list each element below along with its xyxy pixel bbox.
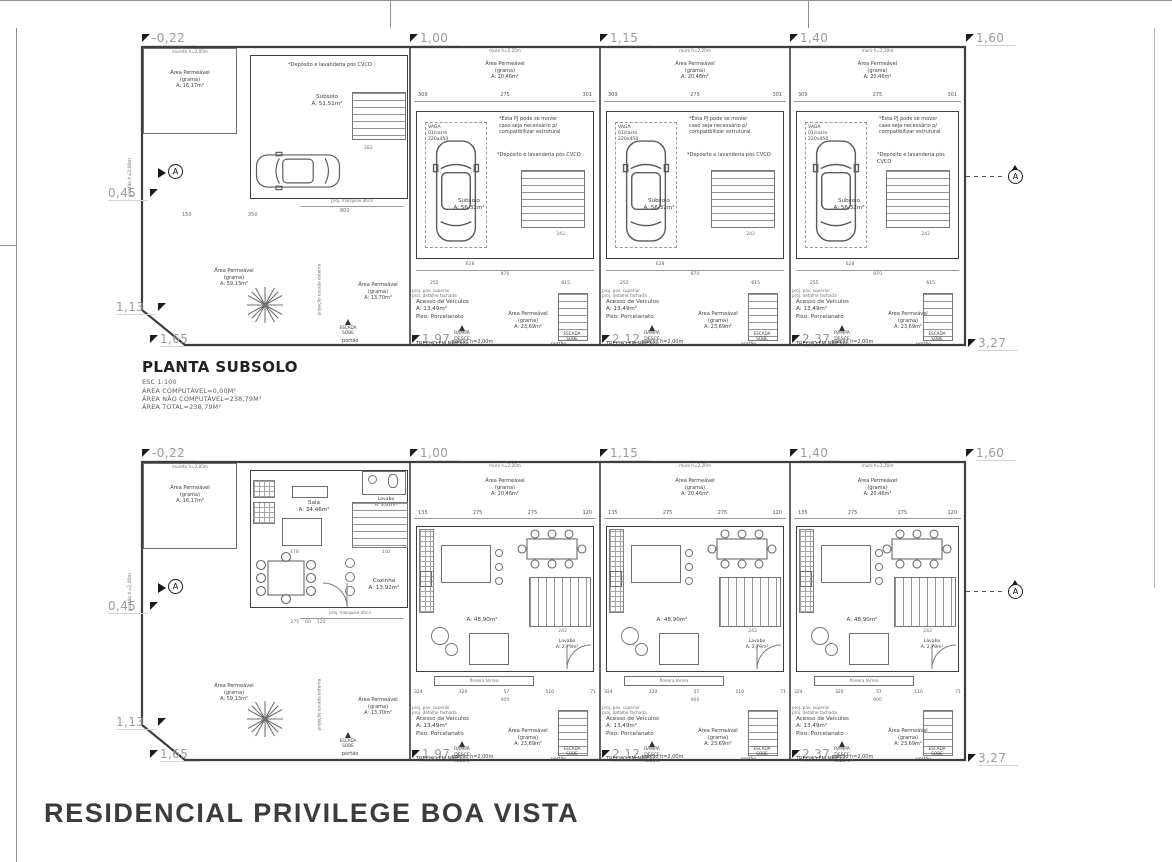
gate-label: portão [551, 342, 566, 348]
dim-label: 110 [735, 690, 744, 695]
unit-plan-subsolo: muro h=2,20m Área Permeável(grama)A: 20,… [600, 47, 790, 345]
stairs [352, 502, 408, 548]
wall-height-label: muro h=2,20m [600, 463, 790, 468]
dim-row: 255 615 [620, 281, 760, 286]
sofa [282, 518, 322, 546]
dim-line [606, 270, 784, 271]
cvco-note: *Depósito e lavanderia pós CVCO [877, 152, 956, 165]
dim-row: 135 275 275 120 [418, 510, 592, 516]
structure-note: *Esta PJ pode se movercaso seja necessár… [499, 116, 591, 136]
plan-title: PLANTA SUBSOLO [142, 358, 298, 376]
structure-note: *Esta PJ pode se movercaso seja necessár… [689, 116, 781, 136]
stool [685, 577, 693, 585]
dim-label: 320 [835, 690, 844, 695]
level-marker: 1,00 [410, 31, 460, 46]
projection-label: proj. pav. superiorproj. detalhe fachada [792, 288, 882, 299]
level-flag-icon [968, 754, 976, 762]
sheet-border-tick1 [390, 0, 391, 28]
living-kitchen-room: A: 48,90m² 242 LavaboA: 2,79m² [416, 526, 594, 672]
level-stretch-label: TRECHO EM NÍVEL [416, 756, 462, 763]
exterior-stair-label: ESCADASOBE [552, 331, 592, 342]
low-wall-label: mureta h=2,00m [147, 464, 233, 469]
kitchen-island [631, 545, 681, 583]
projection-label: projeção escada externa [317, 264, 322, 316]
dim-label: 615 [561, 281, 570, 286]
permeable-area-label: Área Permeável(grama)A: 13,70m² [346, 697, 410, 717]
level-flag-icon [410, 449, 418, 457]
dim-label: 275 [528, 510, 538, 516]
dim-label: 57 [876, 690, 882, 695]
sofa [469, 633, 509, 665]
gate-label: portão [342, 338, 358, 345]
level-marker: 1,13 [116, 715, 166, 730]
vehicle-access-label: Acesso de VeículosA: 13,49m²Piso: Porcel… [606, 716, 698, 738]
dim-label: 478 [290, 550, 299, 556]
dim-label: 324 [794, 690, 803, 695]
dim-label: 324 [604, 690, 613, 695]
stool [495, 549, 503, 557]
room-label-subsolo: SubsoloA: 56,32m² [819, 198, 879, 213]
vehicle-access-label: Acesso de VeículosA: 13,49m²Piso: Porcel… [606, 299, 698, 321]
stool [875, 563, 883, 571]
dim-label: 135 [418, 510, 428, 516]
level-flag-icon [150, 189, 158, 197]
stairs [529, 577, 591, 627]
vehicle-access-label: Acesso de VeículosA: 13,49m²Piso: Porcel… [796, 299, 888, 321]
dim-label: 110 [914, 690, 923, 695]
stool [495, 563, 503, 571]
up-arrow-icon [345, 729, 351, 738]
sink-fixture [420, 571, 432, 587]
dim-label: 628 [810, 262, 890, 268]
sheet-border-top [0, 0, 1172, 1]
project-title: RESIDENCIAL PRIVILEGE BOA VISTA [44, 798, 579, 829]
sink-fixture [610, 571, 622, 587]
dim-label: 628 [620, 262, 700, 268]
permeable-area-label: Área Permeável(grama)A: 23,69m² [496, 311, 560, 331]
room-area-label: A: 48,90m² [827, 617, 897, 624]
level-flag-icon [600, 34, 608, 42]
level-flag-icon [150, 335, 158, 343]
permeable-area-label: Área Permeável(grama)A: 20,46m² [600, 61, 790, 81]
sink-fixture [368, 475, 377, 484]
permeable-area-label: Área Permeável(grama)A: 23,69m² [496, 728, 560, 748]
lavabo-room [362, 471, 406, 495]
wall-height-label: muro h=2,20m [600, 48, 790, 53]
exterior-stair-label: ESCADASOBE [917, 746, 957, 757]
dim-label: 320 [459, 690, 468, 695]
level-marker: 1,40 [790, 446, 840, 461]
unit-plan-terreo: muro h=2,20m Área Permeável(grama)A: 20,… [600, 462, 790, 760]
stool [685, 549, 693, 557]
dim-label: 900 [790, 698, 965, 704]
dim-label: 309 [418, 92, 428, 98]
dim-label: 275 [663, 510, 673, 516]
drawing-sheet: -0,22 1,00 1,15 1,40 1,60 0,45 1,13 1,65… [0, 0, 1172, 862]
dim-label: 900 [600, 698, 790, 704]
cvco-note: *Depósito e lavanderia pós CVCO [497, 152, 591, 159]
section-marker-A: A [1008, 169, 1023, 184]
dim-label: 350 [248, 212, 258, 219]
dim-label: 242 [746, 232, 755, 238]
garage-room: VAGA01/carro220x450 *Esta PJ pode se mov… [606, 111, 784, 259]
dim-label: 275 [500, 92, 510, 98]
dim-row: 309 275 301 [798, 92, 957, 98]
exterior-stair-label: ESCADASOBE [917, 331, 957, 342]
room-label-subsolo: SubsoloA: 56,32m² [439, 198, 499, 213]
wall-height-label: muro h=2,20m [410, 463, 600, 468]
dim-label: 870 [410, 272, 600, 278]
stairs [719, 577, 781, 627]
dining-table [884, 529, 950, 569]
planter-label: floreira térrea [815, 678, 913, 683]
plan-area-line: ÁREA COMPUTÁVEL=0,00M² [142, 387, 236, 395]
dim-row: 255 615 [810, 281, 935, 286]
level-flag-icon [150, 602, 158, 610]
dim-label: 275 [873, 92, 883, 98]
car-icon [812, 138, 860, 244]
up-arrow-icon [459, 322, 465, 331]
dim-row: 324 320 57 110 71 [604, 690, 786, 695]
permeable-area-boundary [143, 48, 237, 134]
dim-label: 255 [810, 281, 819, 286]
level-marker: 1,65 [150, 747, 200, 762]
dim-line [300, 206, 404, 207]
cooktop-burner [345, 572, 355, 582]
dim-label: 120 [582, 510, 592, 516]
dim-label: 255 [430, 281, 439, 286]
dim-label: 71 [955, 690, 961, 695]
sheet-border-tick-left [0, 245, 16, 246]
level-marker: 1,15 [600, 446, 650, 461]
room-label-cozinha: CozinhaA: 13,92m² [358, 578, 410, 593]
dim-label: 255 [620, 281, 629, 286]
dim-row: 309 275 301 [608, 92, 782, 98]
sofa [849, 633, 889, 665]
dim-row: 309 275 301 [418, 92, 592, 98]
pouf [431, 627, 449, 645]
level-flag-icon [142, 449, 150, 457]
shelf-unit [253, 480, 275, 498]
dim-label: 120 [947, 510, 957, 516]
level-flag-icon [158, 718, 166, 726]
wall-height-label: muro h=2,20m [790, 463, 965, 468]
dim-row: 324 320 57 110 71 [794, 690, 961, 695]
dim-label: 57 [694, 690, 700, 695]
permeable-area-label: Área Permeável(grama)A: 16,17m² [147, 485, 233, 505]
wall-height-label: muro h=2,20m [410, 48, 600, 53]
door-swing [756, 644, 782, 670]
garage-room: VAGA01/carro220x450 *Esta PJ pode se mov… [796, 111, 959, 259]
plan-area-line: ÁREA NÃO COMPUTÁVEL=238,79M² [142, 395, 262, 403]
stairs [894, 577, 956, 627]
projection-label: proj. pav. superiorproj. detalhe fachada [602, 288, 692, 299]
dim-label: 628 [430, 262, 510, 268]
section-line [966, 591, 1006, 592]
level-flag-icon [790, 34, 798, 42]
projection-label: proj. pav. superiorproj. detalhe fachada [792, 705, 882, 716]
gate-label: portão [342, 751, 358, 758]
dim-label: 301 [582, 92, 592, 98]
gate-label: portão [741, 757, 756, 763]
dining-table [519, 529, 585, 569]
exterior-stair-label: ESCADASOBE [552, 746, 592, 757]
stairs [521, 170, 585, 228]
permeable-area-label: Área Permeável(grama)A: 20,46m² [410, 61, 600, 81]
section-marker-A: A [168, 579, 183, 594]
dining-table [254, 552, 318, 604]
pouf [445, 643, 458, 656]
projection-label: proj. pav. superiorproj. detalhe fachada [412, 288, 502, 299]
permeable-area-label: Área Permeável(grama)A: 23,69m² [686, 728, 750, 748]
car-icon [622, 138, 670, 244]
dim-row: 255 615 [430, 281, 570, 286]
cvco-note: *Depósito e lavanderia pós CVCO [258, 62, 402, 69]
gate-label: portão [916, 757, 931, 763]
level-stretch-label: TRECHO EM NÍVEL [796, 341, 842, 348]
level-flag-icon [966, 449, 974, 457]
pouf [811, 627, 829, 645]
kitchen-island [821, 545, 871, 583]
dim-label: 135 [608, 510, 618, 516]
projection-label: proj. pav. superiorproj. detalhe fachada [602, 705, 692, 716]
permeable-area-boundary [143, 463, 237, 549]
dim-line [604, 518, 786, 519]
dim-label: 71 [780, 690, 786, 695]
dim-label: 615 [751, 281, 760, 286]
plan-scale: ESC 1:100 [142, 378, 177, 386]
up-arrow-icon [345, 316, 351, 325]
dim-label: 71 [590, 690, 596, 695]
dim-label: 615 [926, 281, 935, 286]
dining-table [709, 529, 775, 569]
wall-height-label: muro h=2,20m [790, 48, 965, 53]
dim-label: 282 [364, 146, 373, 152]
car-icon [254, 148, 342, 194]
dim-label: 309 [798, 92, 808, 98]
up-arrow-icon [649, 738, 655, 747]
stool [875, 549, 883, 557]
level-flag-icon [158, 303, 166, 311]
level-marker: 3,27 [968, 336, 1018, 351]
projection-label: proj. marquise ático [302, 198, 402, 203]
level-flag-icon [150, 750, 158, 758]
up-arrow-icon [839, 738, 845, 747]
tree-icon [246, 286, 284, 324]
dim-label: 120 [772, 510, 782, 516]
exterior-stair-label: ESCADASOBE [328, 729, 368, 749]
shelf-unit [253, 502, 275, 524]
dim-label: 275 [898, 510, 908, 516]
car-icon [432, 138, 480, 244]
permeable-area-label: Área Permeável(grama)A: 59,13m² [196, 268, 272, 288]
permeable-area-label: Área Permeável(grama)A: 20,46m² [790, 478, 965, 498]
sink-fixture [800, 571, 812, 587]
garage-room: VAGA01/carro220x450 *Esta PJ pode se mov… [416, 111, 594, 259]
dim-row: 135 275 275 120 [798, 510, 957, 516]
dim-label: 320 [649, 690, 658, 695]
level-flag-icon [142, 34, 150, 42]
level-flag-icon [966, 34, 974, 42]
room-area-label: A: 48,90m² [447, 617, 517, 624]
projection-label: proj. pav. superiorproj. detalhe fachada [412, 705, 502, 716]
gate-label: portão [741, 342, 756, 348]
level-marker: 1,00 [410, 446, 460, 461]
dim-label: 135 [798, 510, 808, 516]
exterior-stair-label: ESCADASOBE [328, 316, 368, 336]
level-flag-icon [600, 449, 608, 457]
door-swing [322, 582, 348, 608]
level-marker: 1,60 [966, 446, 1016, 461]
cooktop-burner [345, 558, 355, 568]
section-line [966, 176, 1006, 177]
dim-line [794, 101, 961, 102]
dim-label: 324 [414, 690, 423, 695]
unit-plan-subsolo: muro h=2,20m Área Permeável(grama)A: 20,… [790, 47, 965, 345]
vehicle-access-label: Acesso de VeículosA: 13,49m²Piso: Porcel… [416, 716, 508, 738]
sheet-border-tick2 [808, 0, 809, 28]
permeable-area-label: Área Permeável(grama)A: 20,46m² [410, 478, 600, 498]
planter: floreira térrea [814, 676, 914, 686]
exterior-stair-label: ESCADASOBE [742, 746, 782, 757]
dim-label: 275 [718, 510, 728, 516]
level-marker: 3,27 [968, 751, 1018, 766]
up-arrow-icon [459, 738, 465, 747]
dim-label: 275 [473, 510, 483, 516]
unit-plan-terreo: muro h=2,20m Área Permeável(grama)A: 20,… [410, 462, 600, 760]
dim-line [796, 270, 959, 271]
toilet-fixture [388, 474, 398, 488]
dim-label: 242 [923, 629, 932, 635]
stool [875, 577, 883, 585]
dim-label: 57 [504, 690, 510, 695]
level-marker: 1,15 [600, 31, 650, 46]
unit-plan-terreo: muro h=2,20m Área Permeável(grama)A: 20,… [790, 462, 965, 760]
planter: floreira térrea [624, 676, 724, 686]
stool [495, 577, 503, 585]
stairs [886, 170, 950, 228]
kitchen-island [441, 545, 491, 583]
dim-label: 301 [947, 92, 957, 98]
level-stretch-label: TRECHO EM NÍVEL [796, 756, 842, 763]
dim-line [794, 518, 961, 519]
sheet-border-right [1154, 28, 1155, 588]
dim-line [414, 518, 596, 519]
level-marker: 1,60 [966, 31, 1016, 46]
permeable-area-label: Área Permeável(grama)A: 20,46m² [790, 61, 965, 81]
dim-line [604, 101, 786, 102]
room-label-sala: SalaA: 34,46m² [284, 500, 344, 515]
living-kitchen-room: A: 48,90m² 242 LavaboA: 2,79m² [796, 526, 959, 672]
level-marker: -0,22 [142, 31, 197, 46]
plan-area-line: ÁREA TOTAL=238,79M² [142, 403, 221, 411]
dim-label: 242 [748, 629, 757, 635]
pouf [635, 643, 648, 656]
low-wall-label: mureta h=2,00m [147, 49, 233, 54]
dim-label: 800 [340, 208, 350, 215]
stool [685, 563, 693, 571]
dim-line [300, 618, 404, 619]
gate-height-label: portão h=2,00m [128, 158, 134, 196]
section-marker-A: A [168, 164, 183, 179]
pouf [825, 643, 838, 656]
dim-line [414, 101, 596, 102]
level-marker: -0,22 [142, 446, 197, 461]
dim-label: 870 [790, 272, 965, 278]
up-arrow-icon [839, 322, 845, 331]
level-flag-icon [410, 34, 418, 42]
permeable-area-label: Área Permeável(grama)A: 13,70m² [346, 282, 410, 302]
sheet-border-left [16, 28, 17, 862]
level-stretch-label: TRECHO EM NÍVEL [606, 341, 652, 348]
dim-label: 242 [556, 232, 565, 238]
gate-label: portão [916, 342, 931, 348]
dim-label: 242 [558, 629, 567, 635]
vehicle-access-label: Acesso de VeículosA: 13,49m²Piso: Porcel… [416, 299, 508, 321]
planter-label: floreira térrea [435, 678, 533, 683]
dim-row: 135 275 275 120 [608, 510, 782, 516]
door-swing [566, 644, 592, 670]
room-label-subsolo: SubsoloA: 56,32m² [629, 198, 689, 213]
up-arrow-icon [649, 322, 655, 331]
stairs [711, 170, 775, 228]
dim-label: 870 [600, 272, 790, 278]
vehicle-access-label: Acesso de VeículosA: 13,49m²Piso: Porcel… [796, 716, 888, 738]
planter-label: floreira térrea [625, 678, 723, 683]
dim-label: 275 60 120 [268, 620, 348, 626]
door-swing [931, 644, 957, 670]
exterior-stair-label: ESCADASOBE [742, 331, 782, 342]
dim-label: 110 [545, 690, 554, 695]
dim-label: 301 [772, 92, 782, 98]
living-kitchen-room: A: 48,90m² 242 LavaboA: 2,79m² [606, 526, 784, 672]
level-flag-icon [790, 449, 798, 457]
tree-icon [246, 700, 284, 738]
gate-label: portão [551, 757, 566, 763]
dim-label: 242 [921, 232, 930, 238]
permeable-area-label: Área Permeável(grama)A: 23,69m² [686, 311, 750, 331]
permeable-area-label: Área Permeável(grama)A: 20,46m² [600, 478, 790, 498]
projection-label: projeção escada externa [317, 679, 322, 731]
dim-label: 102 [382, 550, 391, 556]
unit-plan-subsolo: muro h=2,20m Área Permeável(grama)A: 20,… [410, 47, 600, 345]
section-marker-A: A [1008, 584, 1023, 599]
gate-height-label: portão h=2,00m [128, 573, 134, 611]
level-marker: 1,13 [116, 300, 166, 315]
permeable-area-label: Área Permeável(grama)A: 16,17m² [147, 70, 233, 90]
planter: floreira térrea [434, 676, 534, 686]
dim-label: 900 [410, 698, 600, 704]
level-marker: 1,65 [150, 332, 200, 347]
dim-label: 275 [848, 510, 858, 516]
dim-label: 150 [182, 212, 192, 219]
room-area-label: A: 48,90m² [637, 617, 707, 624]
cvco-note: *Depósito e lavanderia pós CVCO [687, 152, 781, 159]
stairs [352, 92, 406, 140]
sofa [659, 633, 699, 665]
level-flag-icon [968, 339, 976, 347]
level-stretch-label: TRECHO EM NÍVEL [416, 341, 462, 348]
level-marker: 1,40 [790, 31, 840, 46]
dim-label: 309 [608, 92, 618, 98]
dim-line [416, 270, 594, 271]
dim-label: 275 [690, 92, 700, 98]
projection-label: proj. marquise ático [300, 610, 400, 615]
structure-note: *Esta PJ pode se movercaso seja necessár… [879, 116, 956, 136]
dim-row: 324 320 57 110 71 [414, 690, 596, 695]
level-stretch-label: TRECHO EM NÍVEL [606, 756, 652, 763]
pouf [621, 627, 639, 645]
